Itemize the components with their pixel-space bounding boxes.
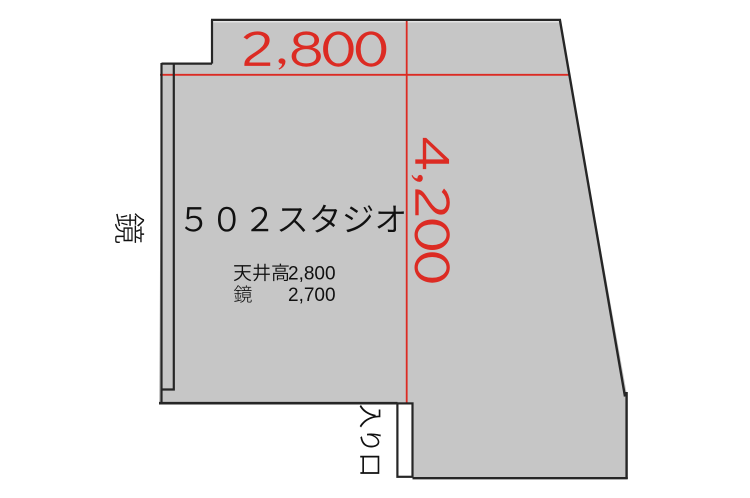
svg-text:2,700: 2,700 xyxy=(288,285,336,306)
svg-text:2,800: 2,800 xyxy=(288,264,336,285)
